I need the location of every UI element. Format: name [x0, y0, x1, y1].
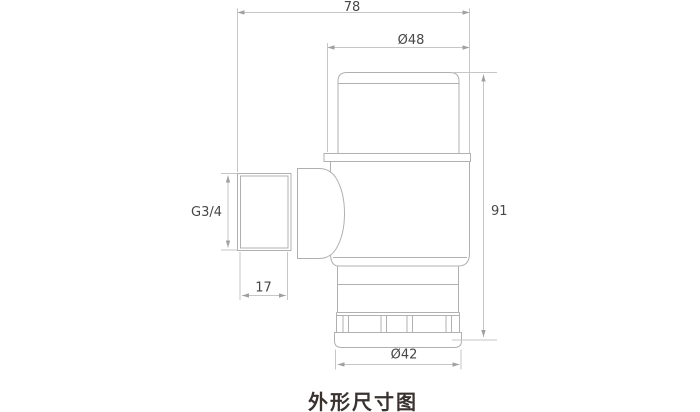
cap-outline [338, 73, 459, 154]
dim-text-overall-width: 78 [344, 0, 361, 15]
drawing-title: 外形尺寸图 [308, 386, 418, 412]
body-outline [331, 162, 470, 267]
dimension-drawing-page: 78 Ø48 91 G3/4 17 Ø42 外形尺寸图 [0, 0, 700, 412]
dim-text-overall-height: 91 [491, 204, 508, 219]
dim-text-cap-diameter: Ø48 [398, 33, 425, 48]
flange [324, 154, 471, 162]
valve-dimension-drawing: 78 Ø48 91 G3/4 17 Ø42 [0, 0, 700, 412]
dim-text-inlet-length: 17 [255, 281, 272, 296]
lower-housing [338, 266, 459, 313]
drain-cage [337, 313, 460, 333]
dim-text-inlet-thread: G3/4 [191, 205, 222, 220]
inlet-stub-outer [238, 174, 292, 251]
cage-slot-lines [343, 316, 452, 333]
valve-outline [238, 73, 471, 348]
union-nut [298, 169, 345, 259]
bottom-cap [335, 333, 462, 348]
dim-text-bottom-diameter: Ø42 [391, 348, 418, 363]
